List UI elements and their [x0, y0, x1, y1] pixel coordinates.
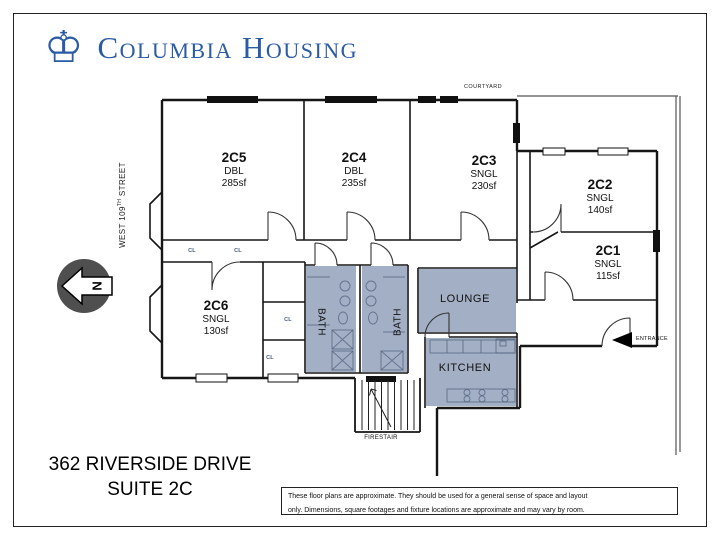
interior-walls [162, 100, 657, 408]
room-area: 130sf [202, 326, 229, 338]
room-id: 2C1 [594, 243, 621, 259]
room-area: 285sf [222, 178, 247, 190]
room-id: 2C2 [586, 177, 613, 193]
north-letter: N [90, 281, 105, 290]
bath-right-label: BATH [393, 308, 404, 336]
room-2C3: 2C3 SNGL 230sf [470, 153, 497, 193]
room-2C2: 2C2 SNGL 140sf [586, 177, 613, 217]
street-label-text: WEST 109 [118, 206, 127, 248]
room-type: SNGL [594, 259, 621, 271]
address-line2: SUITE 2C [35, 477, 265, 502]
firestair-label: FIRESTAIR [364, 435, 398, 441]
room-type: SNGL [202, 314, 229, 326]
closet-label: CL [234, 248, 242, 254]
room-area: 230sf [470, 181, 497, 193]
room-area: 140sf [586, 205, 613, 217]
room-type: SNGL [586, 193, 613, 205]
lounge-label: LOUNGE [440, 293, 490, 305]
closet-label: CL [284, 317, 292, 323]
room-type: SNGL [470, 169, 497, 181]
room-2C6: 2C6 SNGL 130sf [202, 298, 229, 338]
closet-label: CL [188, 248, 196, 254]
room-id: 2C5 [222, 150, 247, 166]
address-line1: 362 RIVERSIDE DRIVE [35, 452, 265, 477]
room-type: DBL [222, 166, 247, 178]
street-label-sup: TH [117, 199, 123, 206]
room-area: 115sf [594, 271, 621, 283]
room-2C4: 2C4 DBL 235sf [342, 150, 367, 190]
room-2C1: 2C1 SNGL 115sf [594, 243, 621, 283]
street-label-text2: STREET [118, 162, 127, 199]
room-area: 235sf [342, 178, 367, 190]
disclaimer-box: These floor plans are approximate. They … [281, 487, 678, 515]
street-label: WEST 109TH STREET [117, 162, 127, 248]
floor-plan-page: ♔ Columbia Housing [0, 0, 720, 540]
disclaimer-line2: only. Dimensions, square footages and fi… [288, 505, 671, 515]
room-2C5: 2C5 DBL 285sf [222, 150, 247, 190]
room-id: 2C6 [202, 298, 229, 314]
room-id: 2C3 [470, 153, 497, 169]
closet-label: CL [266, 355, 274, 361]
entrance-arrow-icon [612, 332, 632, 348]
courtyard-label: COURTYARD [464, 84, 502, 90]
room-id: 2C4 [342, 150, 367, 166]
kitchen-label: KITCHEN [439, 362, 491, 374]
stair-treads [362, 380, 414, 430]
bath-left-label: BATH [316, 308, 327, 336]
address-block: 362 RIVERSIDE DRIVE SUITE 2C [35, 452, 265, 502]
shaded-common-areas [306, 266, 516, 406]
room-type: DBL [342, 166, 367, 178]
entrance-label: ENTRANCE [636, 336, 668, 342]
disclaimer-line1: These floor plans are approximate. They … [288, 491, 671, 502]
